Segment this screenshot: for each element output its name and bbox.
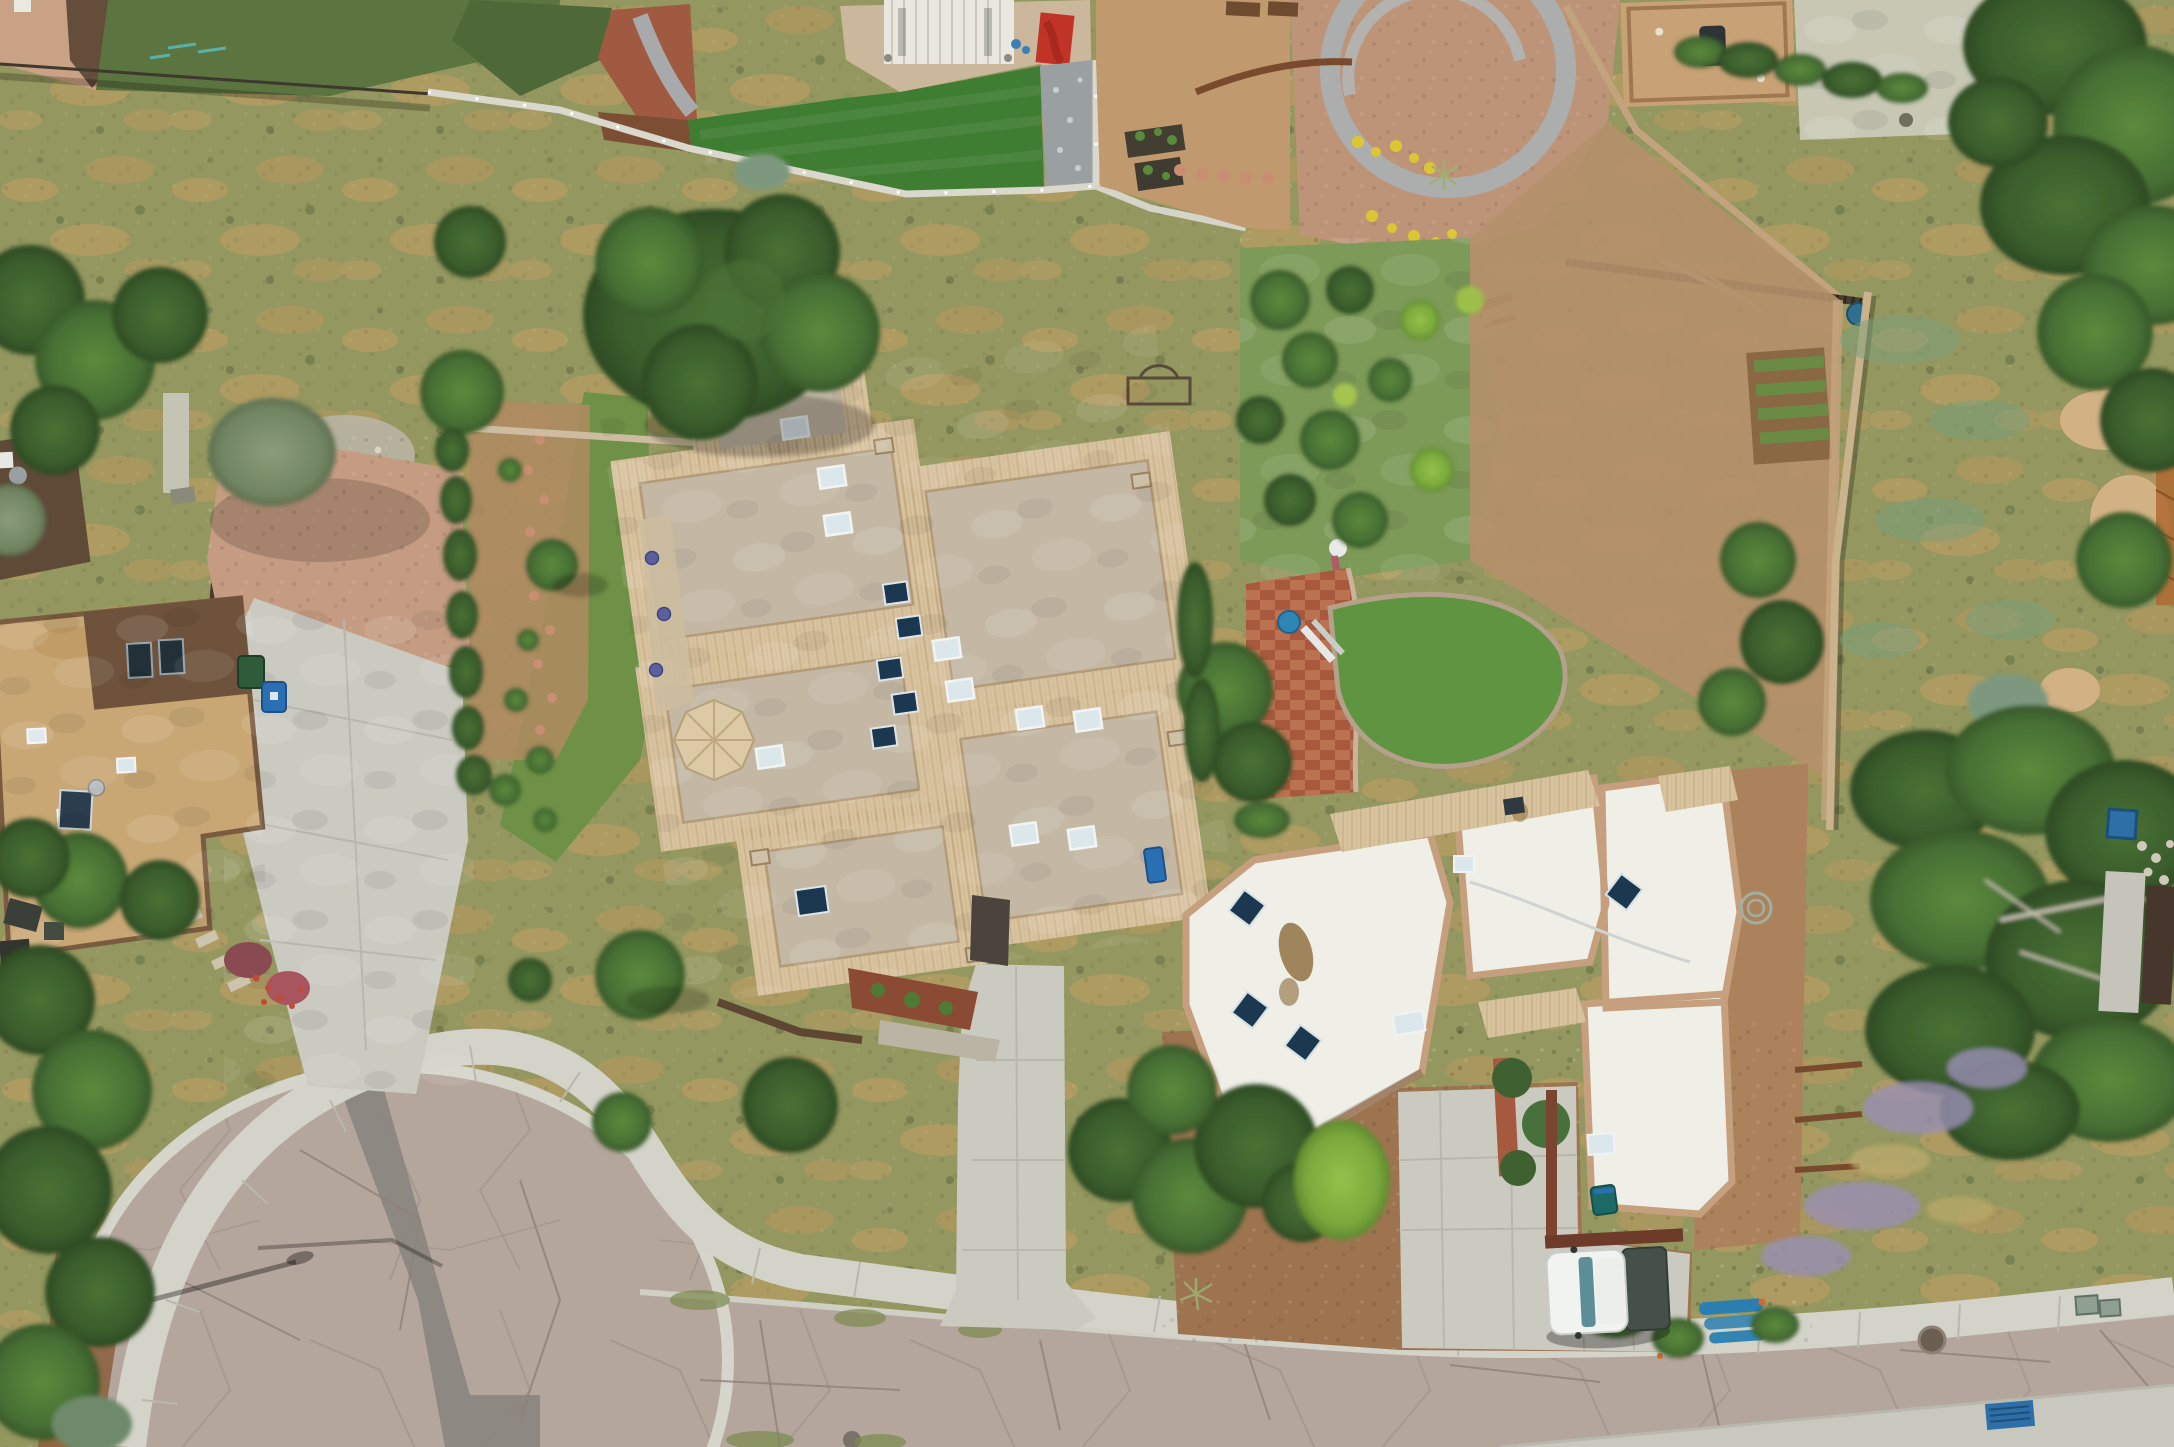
- tree: [112, 267, 208, 363]
- round-shrub: [508, 958, 552, 1002]
- tree: [10, 385, 100, 475]
- red-playset: [1035, 12, 1074, 65]
- tree: [1720, 522, 1796, 598]
- blue-juniper: [734, 154, 790, 190]
- backyard-bush: [1234, 802, 1290, 838]
- tree-mass: [1948, 77, 2048, 167]
- small-tree: [434, 206, 506, 278]
- manhole: [1919, 1327, 1945, 1353]
- round-shrub: [592, 1092, 652, 1152]
- tree: [2076, 512, 2172, 608]
- truck-bed: [1622, 1247, 1670, 1331]
- tree: [1212, 722, 1292, 802]
- stone-path: [163, 393, 189, 493]
- round-shrub: [742, 1057, 838, 1153]
- shrub: [1674, 36, 1726, 68]
- wood-bench: [1268, 1, 1299, 17]
- green-trash-bin: [238, 656, 264, 688]
- tree: [1740, 600, 1824, 684]
- roof-stain: [1279, 978, 1299, 1006]
- blue-trampoline: [2107, 809, 2137, 839]
- pad-drain: [1899, 113, 1913, 127]
- white-object: [14, 0, 31, 12]
- bush: [1751, 1307, 1799, 1343]
- aerial-photo-stage: [0, 0, 2174, 1447]
- blue-bin-east-wall: [1144, 847, 1167, 883]
- entry-courtyard-shadow: [970, 895, 1010, 966]
- shrub: [1822, 62, 1882, 98]
- storm-grate: [1985, 1400, 2035, 1430]
- shrub-shadow: [626, 986, 710, 1014]
- wood-bench: [1226, 1, 1261, 17]
- grass-tuft: [1926, 1196, 1994, 1224]
- shrub: [1718, 42, 1778, 78]
- teal-bin-lid: [1594, 1190, 1614, 1192]
- hedge-column: [1184, 678, 1220, 782]
- juniper-lobe: [595, 207, 705, 317]
- grass-tuft: [1850, 1144, 1930, 1176]
- shrub: [1876, 73, 1928, 103]
- juniper-lobe: [642, 324, 758, 440]
- blue-chair: [1022, 46, 1030, 54]
- red-fence-vertical: [1546, 1090, 1557, 1238]
- tree: [1698, 668, 1766, 736]
- rock-band: [1040, 60, 1096, 188]
- shrub-shadow: [552, 573, 608, 597]
- juniper-highlight: [705, 260, 785, 340]
- aerial-photo: [0, 0, 2174, 1447]
- pickup-truck: [1542, 1241, 1671, 1351]
- kiddie-pool: [1278, 611, 1300, 633]
- swamp-cooler: [1503, 797, 1525, 816]
- gazebo-roof: [674, 700, 754, 780]
- tree: [120, 860, 200, 940]
- bright-bush: [1294, 1120, 1390, 1240]
- blue-chair: [1011, 39, 1021, 49]
- olive-tree: [208, 398, 336, 506]
- neighbor-driveway: [2098, 871, 2145, 1013]
- truck-roof: [1594, 1257, 1625, 1324]
- shade-pergola: [884, 0, 1014, 64]
- small-tree: [420, 350, 504, 434]
- shrub: [1774, 54, 1826, 86]
- hedge-column: [1177, 562, 1213, 678]
- rooftop-box: [0, 452, 13, 469]
- recycle-mark: [270, 692, 278, 700]
- tree: [1127, 1045, 1217, 1135]
